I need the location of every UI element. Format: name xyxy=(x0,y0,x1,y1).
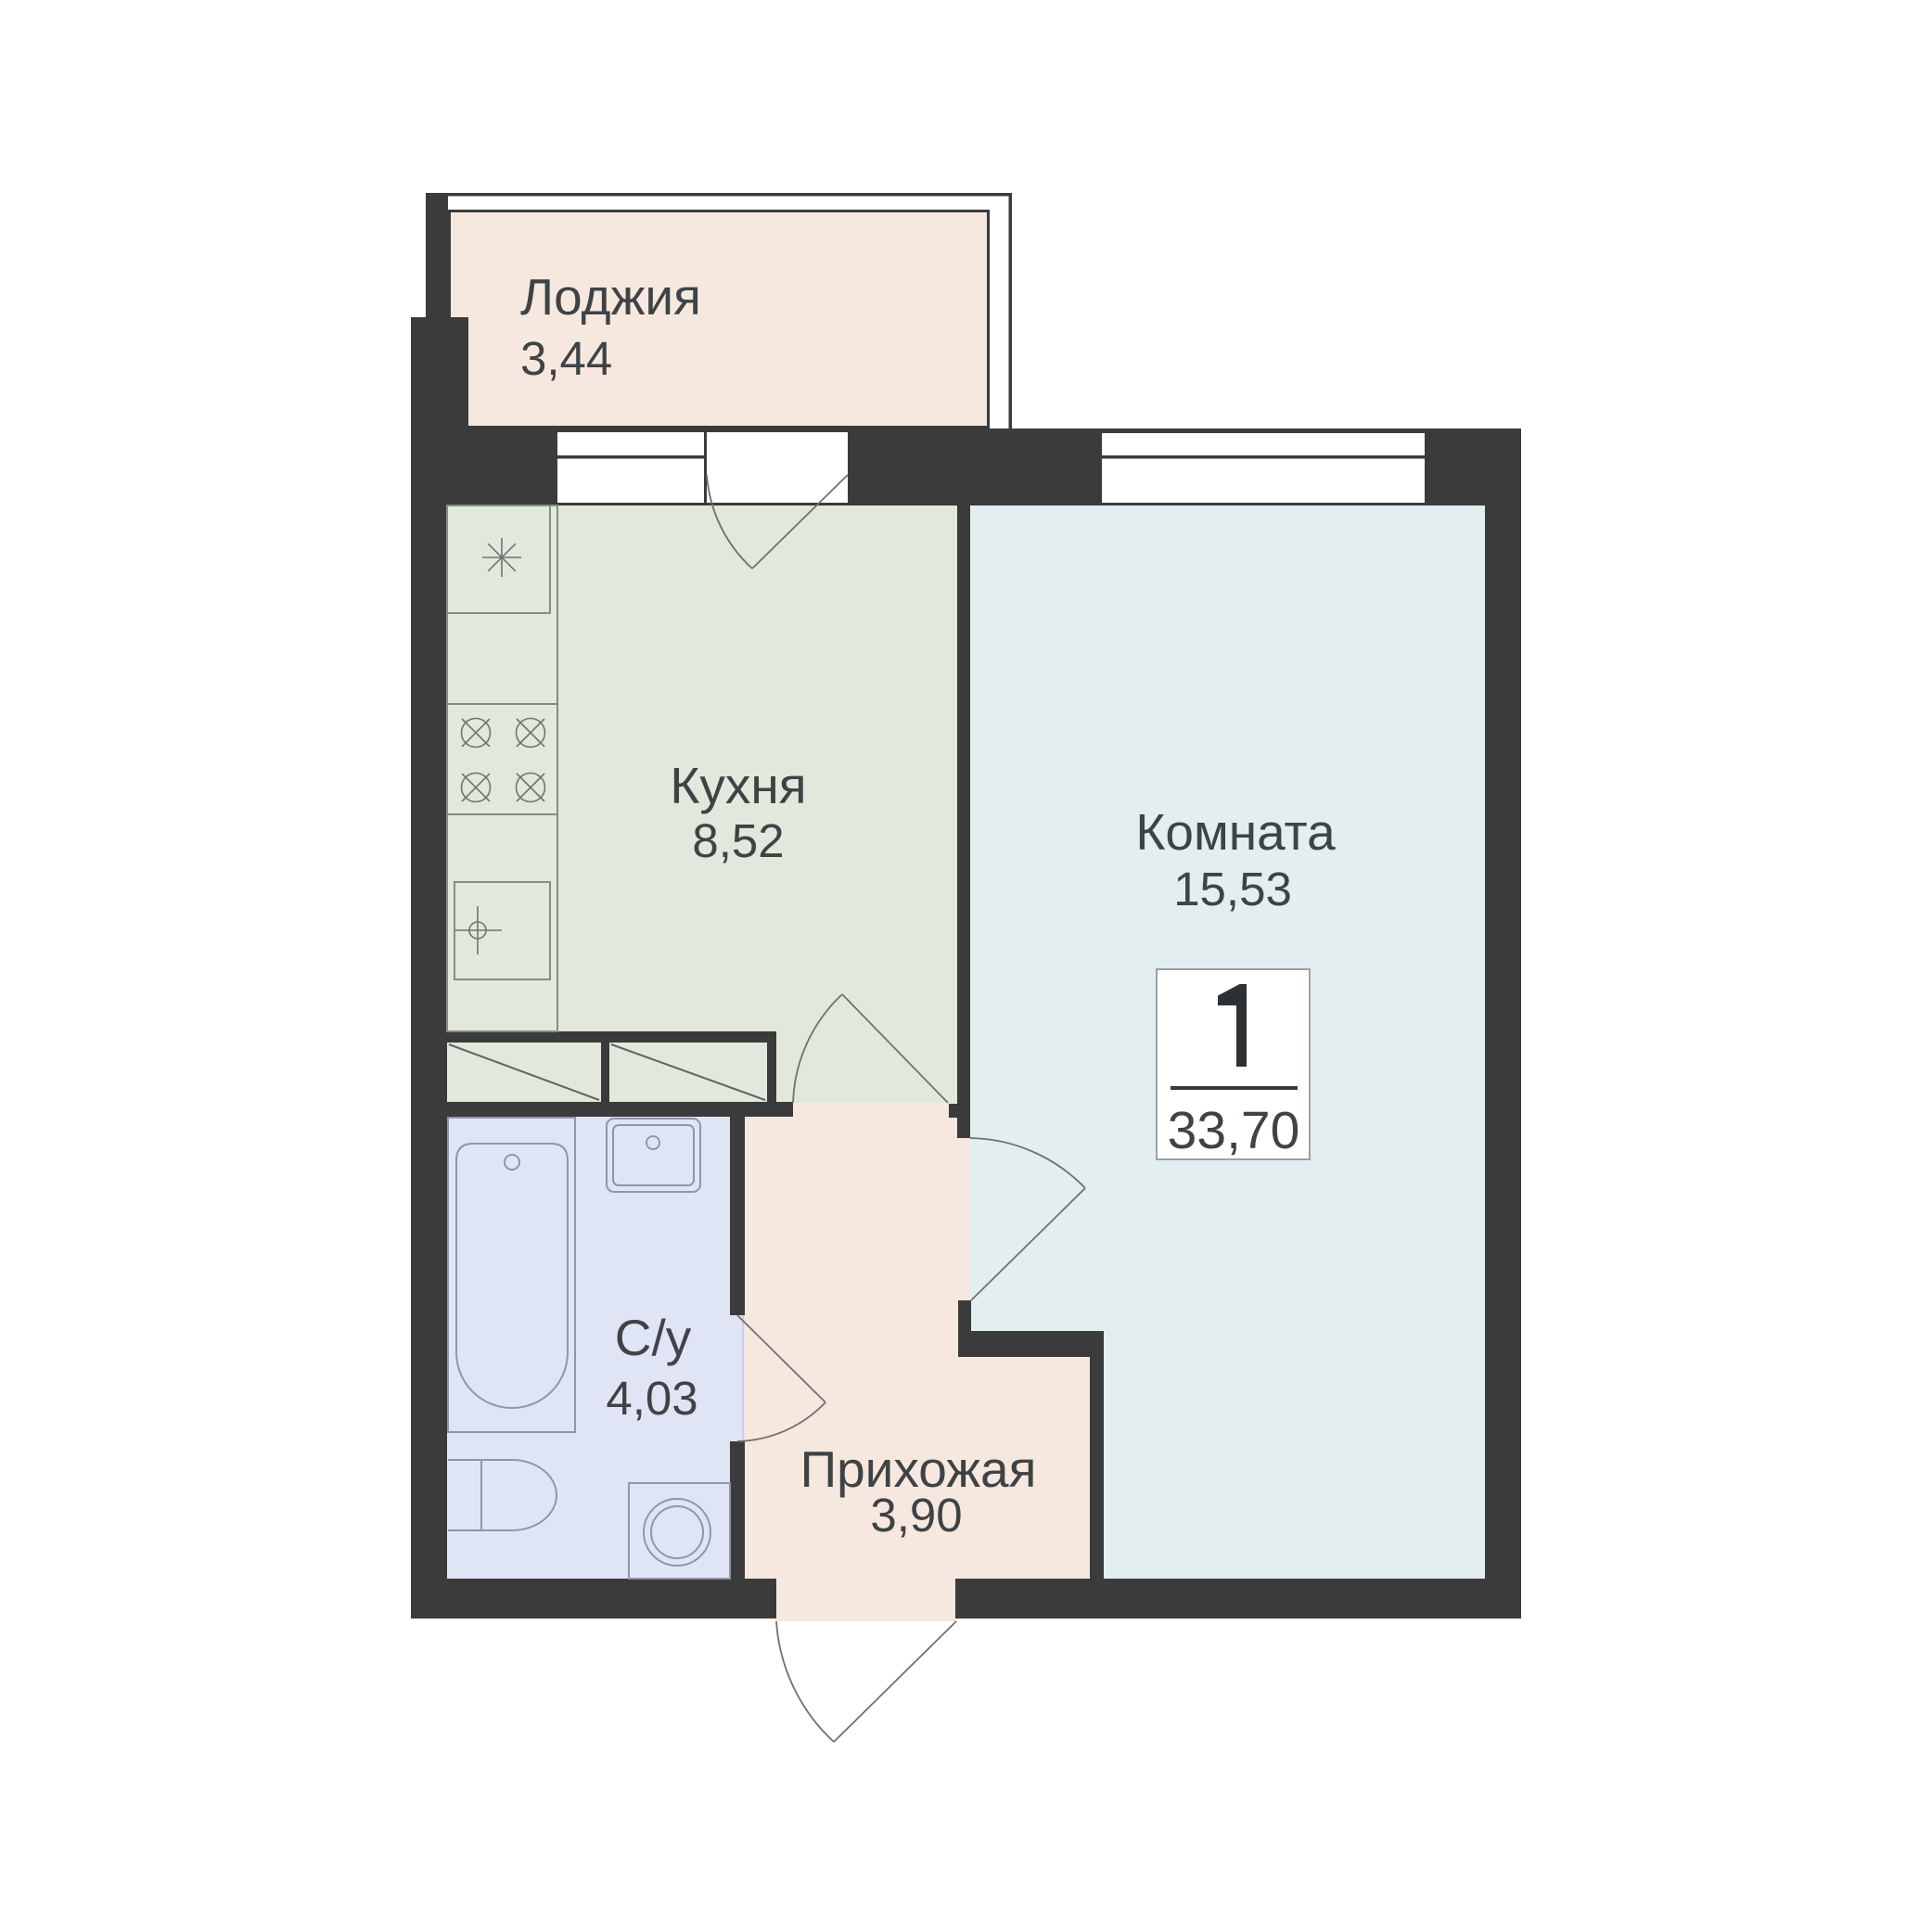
svg-text:3,90: 3,90 xyxy=(870,1489,962,1542)
svg-text:4,03: 4,03 xyxy=(606,1372,697,1425)
svg-text:15,53: 15,53 xyxy=(1173,863,1292,915)
svg-text:Кухня: Кухня xyxy=(670,757,806,814)
svg-text:С/у: С/у xyxy=(615,1309,692,1366)
svg-text:Лоджия: Лоджия xyxy=(520,268,701,326)
svg-text:Комната: Комната xyxy=(1135,803,1336,861)
svg-text:8,52: 8,52 xyxy=(692,814,784,867)
svg-text:3,44: 3,44 xyxy=(520,332,612,385)
svg-text:33,70: 33,70 xyxy=(1168,1101,1300,1160)
